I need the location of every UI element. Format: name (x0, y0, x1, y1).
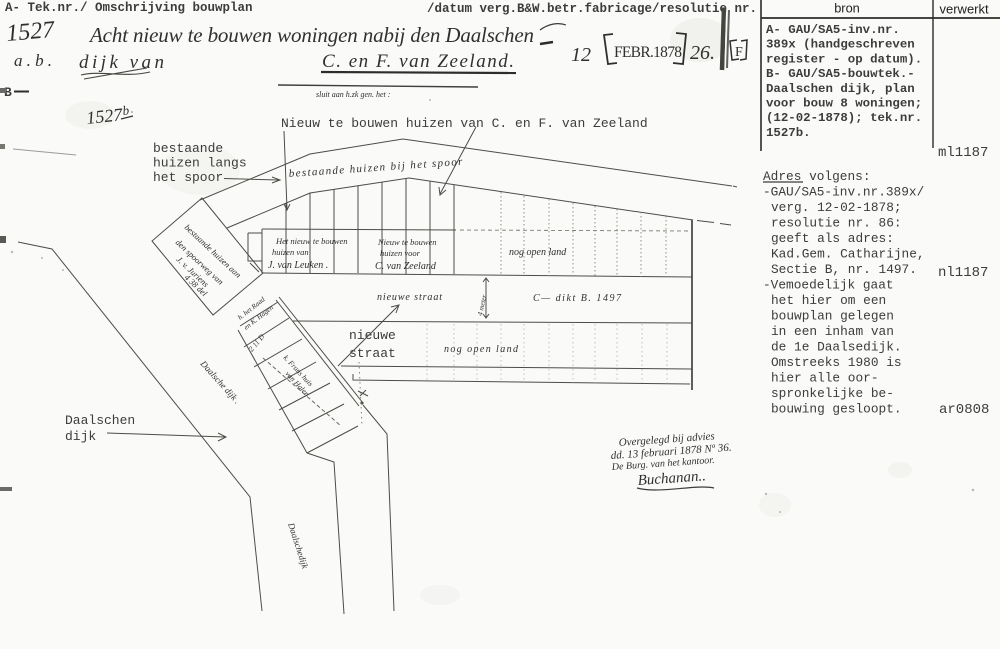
svg-text:B- GAU/SA5-bouwtek.-: B- GAU/SA5-bouwtek.- (766, 67, 915, 81)
svg-text:nieuwe: nieuwe (349, 328, 396, 343)
svg-text:nog open land: nog open land (509, 247, 567, 258)
svg-text:nieuwe straat: nieuwe straat (377, 292, 442, 303)
svg-text:C. en F. van Zeeland.: C. en F. van Zeeland. (322, 51, 514, 72)
svg-text:Omstreeks 1980 is: Omstreeks 1980 is (771, 355, 902, 370)
svg-text:verwerkt: verwerkt (940, 2, 990, 17)
svg-text:Daalschen dijk, plan: Daalschen dijk, plan (766, 82, 915, 96)
svg-text:hier alle oor-: hier alle oor- (771, 371, 879, 386)
svg-text:-GAU/SA5-inv.nr.389x/: -GAU/SA5-inv.nr.389x/ (763, 185, 924, 200)
svg-text:A- GAU/SA5-inv.nr.: A- GAU/SA5-inv.nr. (766, 23, 900, 37)
svg-text:FEBR.1878: FEBR.1878 (614, 44, 682, 61)
svg-text:nog open land: nog open land (444, 344, 519, 355)
svg-text:-Vemoedelijk gaat: -Vemoedelijk gaat (763, 278, 894, 293)
svg-text:verg. 12-02-1878;: verg. 12-02-1878; (771, 200, 902, 215)
svg-text:de 1e Daalsedijk.: de 1e Daalsedijk. (771, 340, 902, 355)
svg-text:C. van Zeeland: C. van Zeeland (375, 261, 437, 272)
svg-text:ml1187: ml1187 (938, 145, 988, 161)
svg-text:geeft als adres:: geeft als adres: (771, 231, 894, 246)
svg-text:389x (handgeschreven: 389x (handgeschreven (766, 38, 915, 52)
svg-text:het hier om een: het hier om een (771, 293, 886, 308)
svg-text:/datum verg.B&W.betr.fabricage: /datum verg.B&W.betr.fabricage/resolutie… (427, 2, 757, 16)
svg-text:spronkelijke be-: spronkelijke be- (771, 386, 894, 401)
svg-text:register - op datum).: register - op datum). (766, 52, 922, 66)
svg-text:Daalschen: Daalschen (65, 413, 135, 428)
svg-text:26.: 26. (690, 42, 715, 64)
svg-text:Nieuw te bouwen: Nieuw te bouwen (377, 237, 437, 247)
svg-text:C— dikt B. 1497: C— dikt B. 1497 (533, 293, 622, 304)
svg-text:bron: bron (834, 1, 860, 16)
svg-text:Acht nieuw te bouwen woningen: Acht nieuw te bouwen woningen nabij den … (88, 23, 534, 47)
svg-text:huizen van: huizen van (272, 247, 309, 257)
svg-text:het spoor: het spoor (153, 170, 223, 185)
svg-text:1527b.: 1527b. (766, 126, 811, 140)
svg-text:Kad.Gem. Catharijne,: Kad.Gem. Catharijne, (771, 247, 925, 262)
svg-text:12: 12 (571, 44, 591, 66)
svg-text:bouwplan gelegen: bouwplan gelegen (771, 309, 894, 324)
svg-text:sluit aan h.zk gen. het :: sluit aan h.zk gen. het : (316, 90, 391, 99)
svg-text:bouwing gesloopt.: bouwing gesloopt. (771, 402, 902, 417)
svg-text:F: F (735, 45, 743, 60)
svg-text:in een inham van: in een inham van (771, 324, 894, 339)
svg-text:resolutie nr. 86:: resolutie nr. 86: (771, 216, 902, 231)
svg-text:1527: 1527 (5, 17, 56, 47)
svg-text:A- Tek.nr./ Omschrijving bouwp: A- Tek.nr./ Omschrijving bouwplan (5, 1, 253, 15)
svg-text:J. van Leuken .: J. van Leuken . (268, 260, 328, 271)
svg-text:voor bouw 8 woningen;: voor bouw 8 woningen; (766, 97, 922, 111)
svg-text:ar0808: ar0808 (939, 402, 989, 418)
svg-text:(12-02-1878); tek.nr.: (12-02-1878); tek.nr. (766, 111, 922, 125)
svg-text:Het nieuw te bouwen: Het nieuw te bouwen (275, 236, 348, 246)
svg-text:bestaande: bestaande (153, 141, 223, 156)
svg-text:Nieuw te bouwen huizen van C.: Nieuw te bouwen huizen van C. en F. van … (281, 116, 648, 131)
svg-text:huizen voor: huizen voor (380, 248, 421, 258)
svg-text:Sectie B, nr. 1497.: Sectie B, nr. 1497. (771, 262, 917, 277)
svg-text:nl1187: nl1187 (938, 265, 988, 281)
svg-text:huizen langs: huizen langs (153, 156, 247, 171)
svg-text:dijk: dijk (65, 429, 96, 444)
svg-text:1527: 1527 (85, 104, 124, 128)
